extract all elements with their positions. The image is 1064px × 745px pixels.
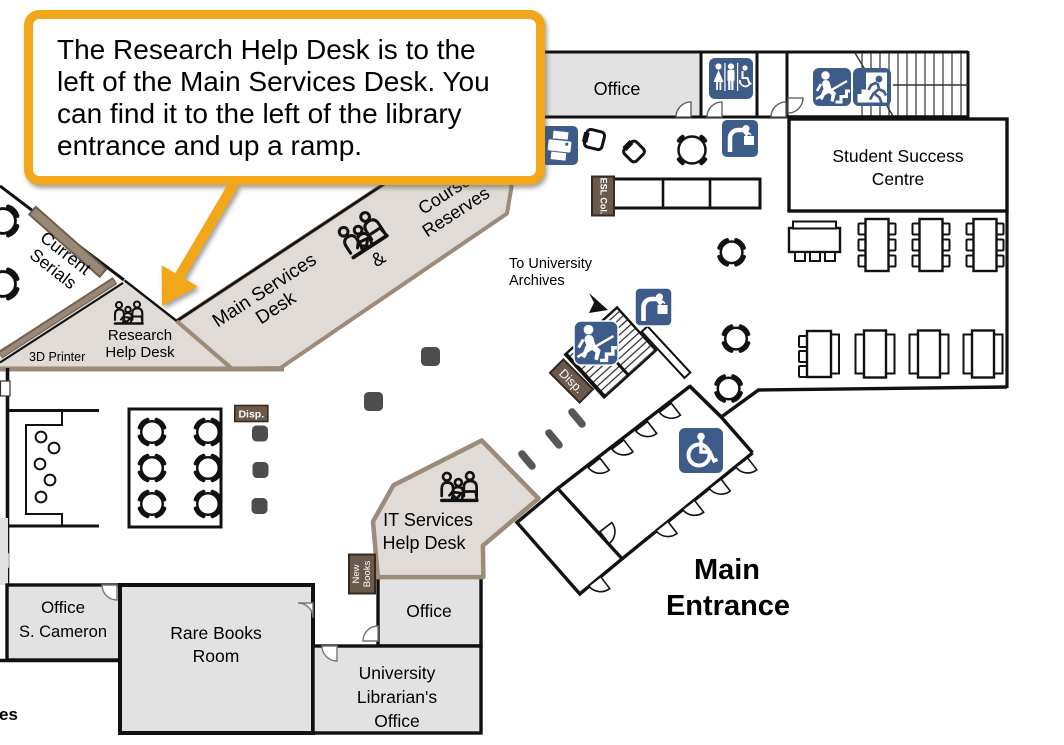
svg-text:Help Desk: Help Desk: [382, 533, 466, 553]
svg-text:Office: Office: [374, 711, 419, 731]
svg-text:To University: To University: [509, 256, 593, 272]
svg-text:es: es: [0, 705, 18, 724]
svg-text:entrance and up a ramp.: entrance and up a ramp.: [57, 130, 362, 161]
svg-text:Office: Office: [41, 598, 85, 617]
svg-text:left of the Main Services Desk: left of the Main Services Desk. You: [57, 66, 490, 97]
svg-text:Centre: Centre: [872, 169, 925, 189]
svg-text:The Research Help Desk is to t: The Research Help Desk is to the: [57, 34, 476, 65]
svg-text:Student Success: Student Success: [832, 146, 964, 166]
svg-text:New: New: [351, 564, 362, 583]
svg-text:Entrance: Entrance: [666, 590, 790, 622]
svg-text:Archives: Archives: [509, 273, 565, 289]
svg-text:Help Desk: Help Desk: [105, 344, 175, 361]
svg-text:Main: Main: [694, 554, 760, 586]
svg-text:Disp.: Disp.: [238, 409, 264, 421]
svg-text:IT Services: IT Services: [383, 510, 473, 530]
svg-text:S. Cameron: S. Cameron: [19, 623, 107, 641]
svg-text:Books: Books: [362, 561, 373, 588]
svg-text:Office: Office: [594, 79, 641, 99]
svg-text:ESL Col.: ESL Col.: [599, 178, 609, 215]
svg-text:3D Printer: 3D Printer: [29, 350, 85, 364]
svg-text:University: University: [359, 663, 436, 683]
svg-text:can find it to the left of the: can find it to the left of the library: [57, 98, 462, 129]
svg-text:Rare Books: Rare Books: [170, 623, 262, 643]
svg-text:Office: Office: [406, 601, 451, 621]
svg-text:Research: Research: [108, 327, 172, 344]
svg-text:Librarian's: Librarian's: [357, 687, 437, 707]
svg-text:Room: Room: [193, 646, 240, 666]
